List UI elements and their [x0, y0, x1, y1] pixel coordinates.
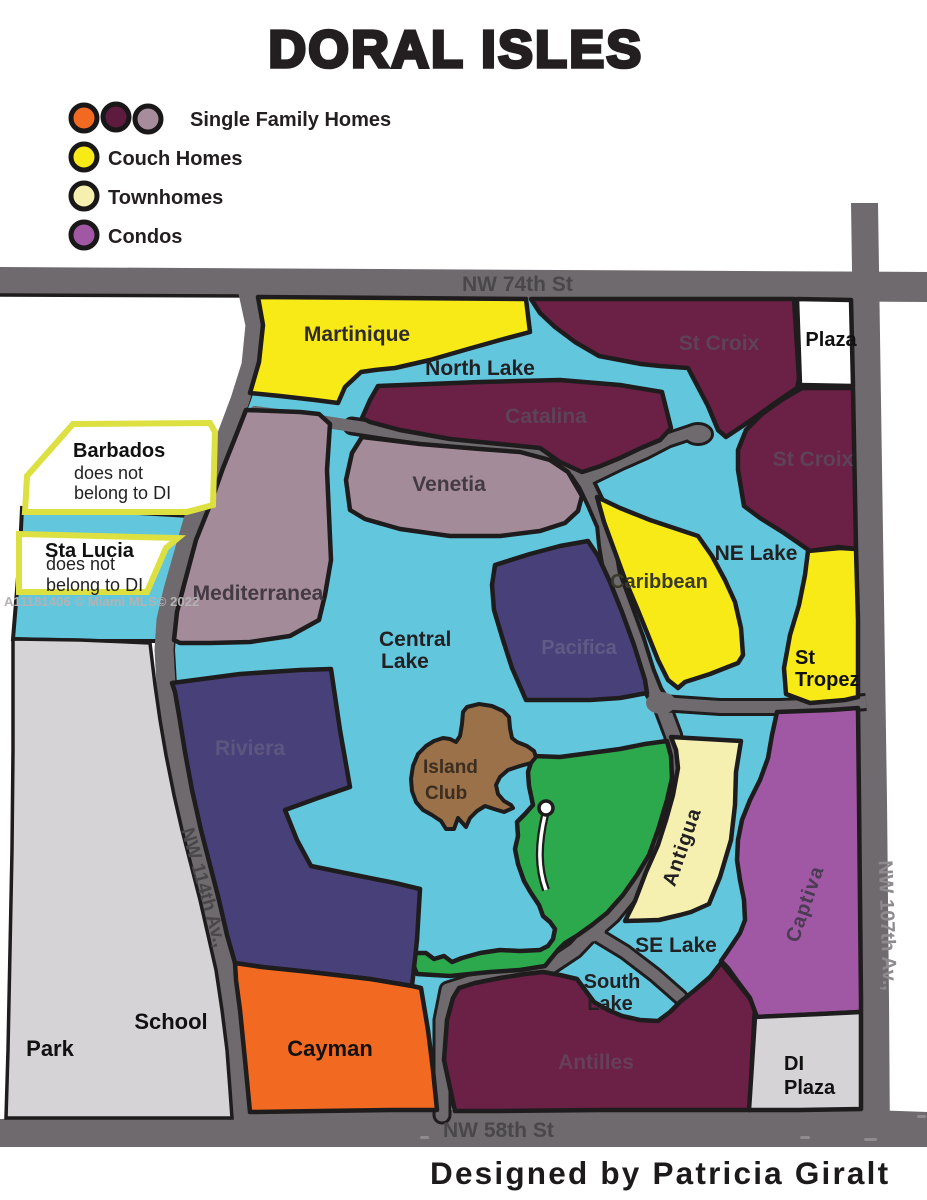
svg-text:does not: does not	[46, 554, 115, 574]
svg-text:Central: Central	[379, 628, 451, 651]
svg-text:does not: does not	[74, 463, 143, 483]
svg-text:Catalina: Catalina	[505, 405, 587, 428]
svg-text:Mediterranea: Mediterranea	[193, 582, 324, 605]
svg-text:Antilles: Antilles	[558, 1051, 634, 1074]
svg-text:St: St	[795, 647, 815, 669]
svg-text:Pacifica: Pacifica	[541, 637, 617, 659]
svg-text:A11181406 © Miami MLS© 2022: A11181406 © Miami MLS© 2022	[4, 594, 199, 609]
svg-text:Cayman: Cayman	[287, 1036, 373, 1061]
svg-text:SE Lake: SE Lake	[635, 934, 717, 957]
svg-text:Lake: Lake	[381, 650, 429, 673]
svg-text:NW 58th St: NW 58th St	[443, 1119, 554, 1142]
svg-text:St Croix: St Croix	[773, 448, 854, 471]
svg-text:Lake: Lake	[587, 993, 633, 1015]
svg-text:St Croix: St Croix	[679, 332, 760, 355]
svg-text:Venetia: Venetia	[412, 473, 486, 496]
svg-text:belong to DI: belong to DI	[46, 575, 143, 595]
svg-text:Martinique: Martinique	[304, 323, 410, 346]
svg-text:Condos: Condos	[108, 226, 182, 248]
svg-text:Park: Park	[26, 1036, 74, 1061]
svg-text:Tropez: Tropez	[795, 669, 859, 691]
svg-text:DORAL ISLES: DORAL ISLES	[268, 21, 643, 79]
svg-text:Riviera: Riviera	[215, 737, 285, 760]
svg-text:Townhomes: Townhomes	[108, 187, 223, 209]
svg-text:Plaza: Plaza	[805, 329, 857, 351]
svg-text:School: School	[134, 1009, 207, 1034]
svg-text:Single Family Homes: Single Family Homes	[190, 109, 391, 131]
svg-text:belong to DI: belong to DI	[74, 483, 171, 503]
svg-text:North Lake: North Lake	[425, 357, 535, 380]
svg-text:Designed by Patricia Giralt: Designed by Patricia Giralt	[430, 1155, 890, 1191]
svg-text:DI: DI	[784, 1053, 804, 1075]
svg-text:Couch Homes: Couch Homes	[108, 148, 242, 170]
svg-text:Caribbean: Caribbean	[610, 571, 708, 593]
svg-text:NW 74th St: NW 74th St	[462, 273, 573, 296]
svg-text:Club: Club	[425, 783, 467, 804]
svg-text:Island: Island	[423, 757, 478, 778]
svg-text:Plaza: Plaza	[784, 1077, 836, 1099]
svg-text:NW 107th Av.,: NW 107th Av.,	[874, 860, 901, 991]
svg-text:Barbados: Barbados	[73, 440, 165, 462]
svg-text:NE Lake: NE Lake	[715, 542, 798, 565]
svg-text:South: South	[584, 971, 641, 993]
